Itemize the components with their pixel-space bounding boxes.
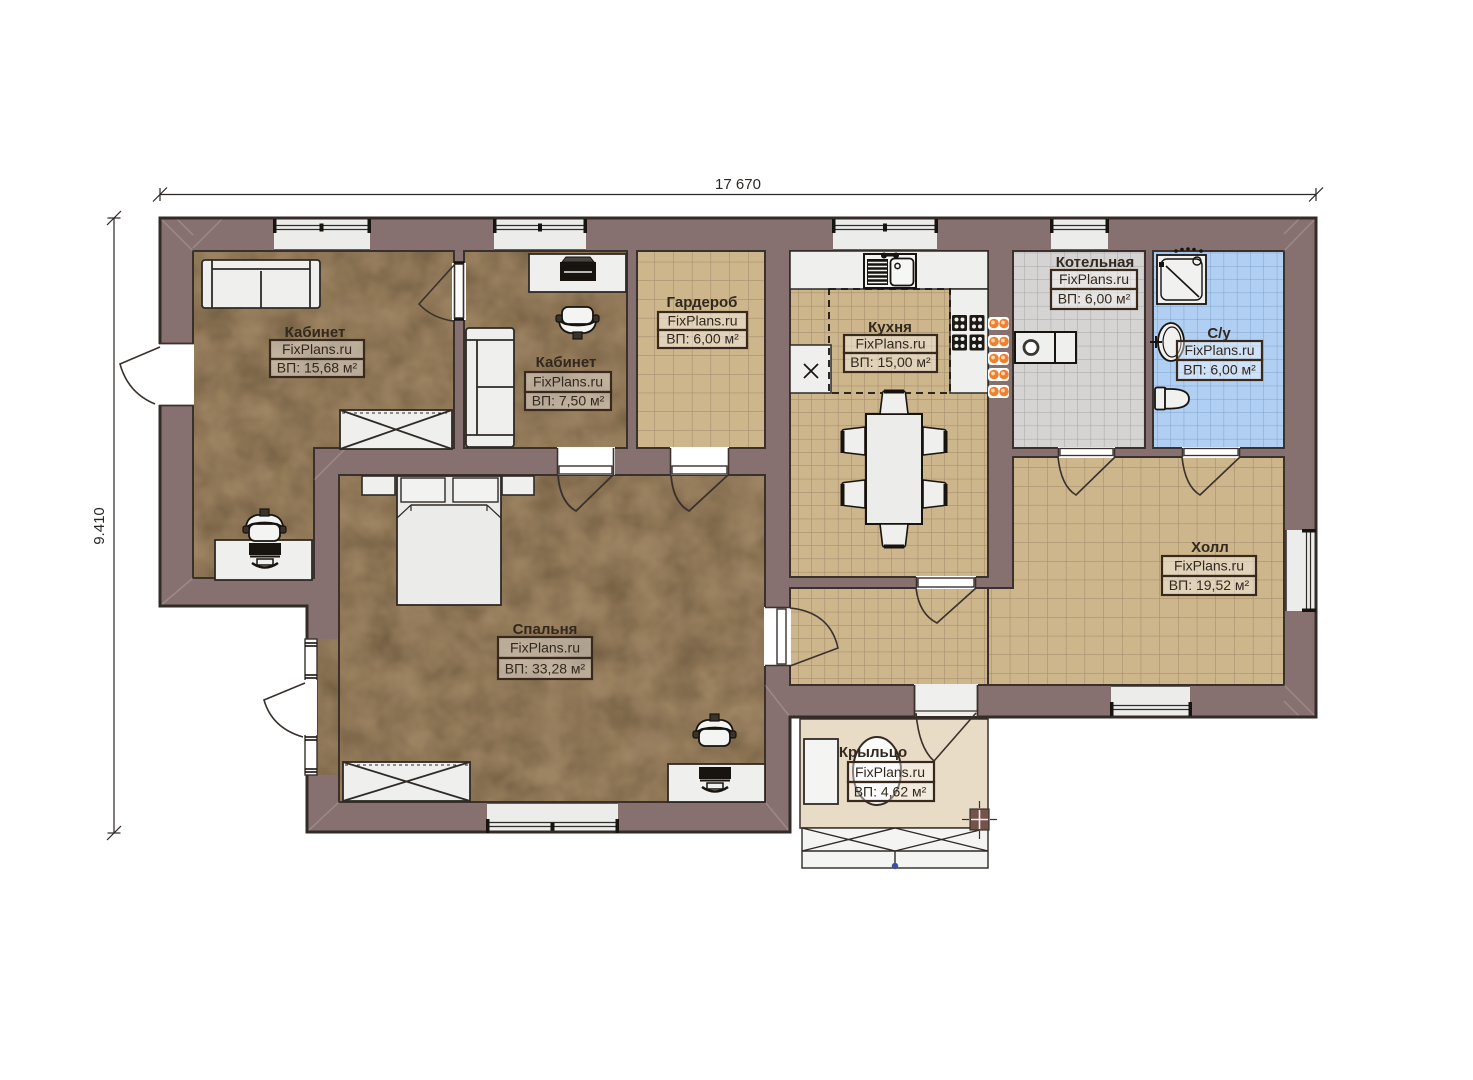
svg-text:FixPlans.ru: FixPlans.ru [510,640,580,656]
svg-text:ВП: 19,52 м²: ВП: 19,52 м² [1169,577,1250,593]
svg-text:Гардероб: Гардероб [667,294,738,311]
svg-text:ВП: 6,00 м²: ВП: 6,00 м² [1058,291,1131,307]
svg-text:Кабинет: Кабинет [536,354,597,371]
svg-text:Кабинет: Кабинет [285,324,346,341]
svg-text:С/у: С/у [1207,325,1231,342]
svg-text:ВП: 33,28 м²: ВП: 33,28 м² [505,661,586,677]
svg-text:FixPlans.ru: FixPlans.ru [282,341,352,357]
svg-text:FixPlans.ru: FixPlans.ru [855,764,925,780]
svg-text:FixPlans.ru: FixPlans.ru [667,313,737,329]
svg-text:FixPlans.ru: FixPlans.ru [1174,558,1244,574]
svg-text:ВП: 6,00 м²: ВП: 6,00 м² [1183,362,1256,378]
svg-text:17 670: 17 670 [715,176,761,193]
svg-text:Спальня: Спальня [513,621,578,638]
svg-text:ВП: 4,62 м²: ВП: 4,62 м² [854,784,927,800]
svg-text:FixPlans.ru: FixPlans.ru [1059,271,1129,287]
svg-text:ВП: 7,50 м²: ВП: 7,50 м² [532,393,605,409]
svg-text:Крыльцо: Крыльцо [839,744,907,761]
svg-text:FixPlans.ru: FixPlans.ru [533,374,603,390]
svg-text:Холл: Холл [1191,539,1229,556]
svg-text:ВП: 15,68 м²: ВП: 15,68 м² [277,360,358,376]
svg-text:FixPlans.ru: FixPlans.ru [855,336,925,352]
svg-text:FixPlans.ru: FixPlans.ru [1184,342,1254,358]
svg-text:9.410: 9.410 [91,507,108,545]
svg-text:Котельная: Котельная [1056,254,1135,271]
svg-text:ВП: 15,00 м²: ВП: 15,00 м² [850,354,931,370]
svg-text:Кухня: Кухня [868,319,912,336]
svg-text:ВП: 6,00 м²: ВП: 6,00 м² [666,331,739,347]
